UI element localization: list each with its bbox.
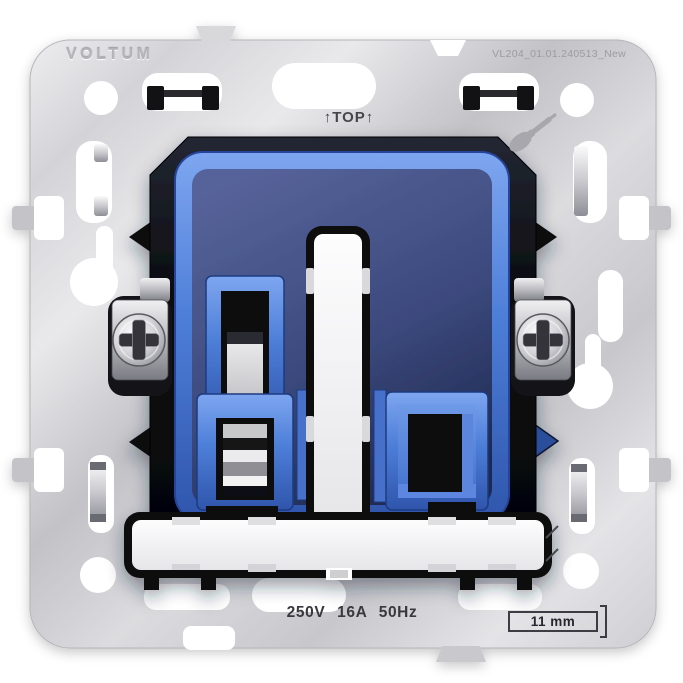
device-render <box>0 0 683 683</box>
dimension-box: 11 mm <box>508 611 598 632</box>
hole-top-left <box>84 81 118 115</box>
clip-left-mid <box>90 462 106 522</box>
contact-stripe-4 <box>223 462 267 476</box>
bottom-bar-tab-1 <box>172 517 200 525</box>
notch-left-upper <box>34 196 64 240</box>
notch-bottom-edge <box>183 626 235 650</box>
clamp-top-edge <box>227 332 263 344</box>
clip-top-right-a <box>463 86 480 110</box>
clip-left-mid-cap-top <box>90 462 106 470</box>
clip-right-mid-cap-top <box>571 464 587 472</box>
oval-right <box>598 270 623 342</box>
electrical-rating: 250V 16A 50Hz <box>242 604 462 622</box>
part-number: VL204_01.01.240513_New <box>492 48 626 60</box>
screw-left-wing <box>140 278 170 302</box>
dimension-bracket <box>600 605 607 638</box>
clip-top-left-b <box>202 86 219 110</box>
notch-right-lower <box>619 448 649 492</box>
foot-left-a <box>144 574 159 590</box>
clip-vslot-left-a <box>94 144 108 162</box>
bottom-bar-tab-2 <box>248 517 276 525</box>
contact-stripe-5 <box>223 476 267 486</box>
blue-rib-right <box>374 390 386 502</box>
center-bar-tab-2 <box>362 268 370 294</box>
clip-left-mid-cap-bottom <box>90 514 106 522</box>
bottom-bar-tab-6 <box>248 564 276 572</box>
foot-right-a <box>460 574 475 590</box>
center-bar-tab-1 <box>306 268 314 294</box>
bottom-bar-center-tab <box>330 570 348 578</box>
contact-stripe-2 <box>223 438 267 450</box>
bottom-bar <box>132 520 544 570</box>
clip-vslot-left-b <box>94 196 108 216</box>
dimension-label: 11 mm <box>531 614 576 629</box>
keyhole-left <box>70 258 118 306</box>
clip-right-mid <box>571 464 587 522</box>
slot-top-center <box>272 63 376 109</box>
hole-bottom-left <box>80 557 116 593</box>
notch-right-upper <box>619 196 649 240</box>
plate-tab-top <box>196 26 236 42</box>
screw-right-wing <box>514 278 544 302</box>
contact-stripe-1 <box>223 424 267 438</box>
clip-top-right-b <box>517 86 534 110</box>
notch-left-lower <box>34 448 64 492</box>
clip-vslot-right <box>574 146 588 216</box>
bottom-bar-tab-3 <box>428 517 456 525</box>
plate-tab-bottom <box>436 646 486 662</box>
foot-right-b <box>517 574 532 590</box>
terminal-right-hole <box>408 414 462 492</box>
contact-stripe-3 <box>223 450 267 462</box>
center-bar-tab-3 <box>306 416 314 442</box>
bottom-bar-tab-4 <box>488 517 516 525</box>
center-bar <box>314 234 362 520</box>
product-image: VOLTUM VL204_01.01.240513_New ↑TOP↑ 250V… <box>0 0 683 683</box>
orientation-label: ↑TOP↑ <box>279 109 419 126</box>
contact-stripe-6 <box>223 486 267 496</box>
mechanism <box>124 137 558 590</box>
clip-right-mid-cap-bottom <box>571 514 587 522</box>
bottom-bar-tab-7 <box>428 564 456 572</box>
hole-bottom-right <box>563 553 599 589</box>
clip-top-left-a <box>147 86 164 110</box>
terminal-right-bevel <box>462 414 473 492</box>
center-bar-tab-4 <box>362 416 370 442</box>
brand-logo: VOLTUM <box>66 46 153 64</box>
foot-left-b <box>201 574 216 590</box>
hole-top-right <box>560 83 594 117</box>
